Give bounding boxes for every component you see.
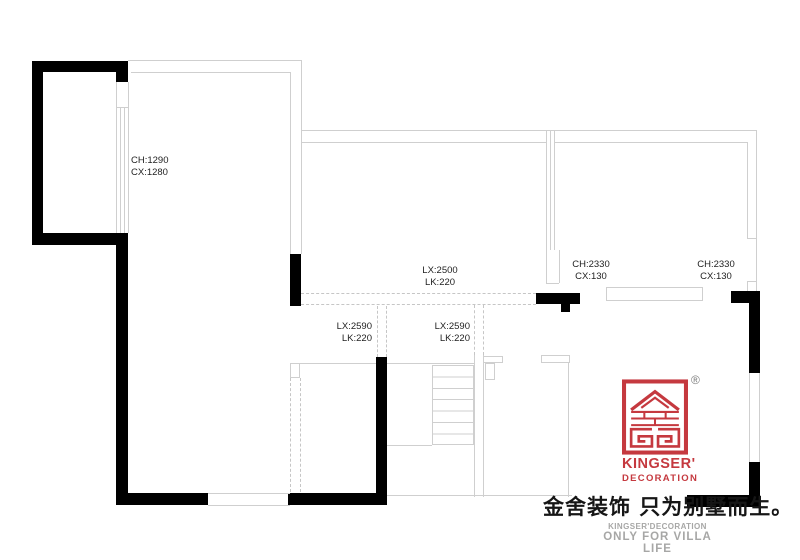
wall-hall-pier [290, 254, 301, 306]
wall-topleft-right-stub [116, 61, 128, 82]
landing-step-box [290, 363, 300, 378]
wall-living-right [376, 357, 387, 505]
wall-topleft-top [32, 61, 128, 72]
bath-top-step [541, 355, 570, 363]
door-opening-mid [606, 287, 703, 301]
line-room-right-jog3 [747, 281, 748, 291]
dim-label-door-mid: CH:2330 CX:130 [561, 259, 621, 283]
brand-slogan-chinese: 金舍装饰 只为别墅而生。 [543, 491, 793, 521]
line-outer-top [128, 60, 301, 61]
window-right-line-1 [749, 373, 750, 462]
registered-mark: ® [691, 373, 700, 387]
pillar-line-right [559, 250, 560, 283]
line-outer-upper [301, 130, 757, 131]
dim-line-2: CX:130 [686, 271, 746, 283]
line-room-right-jog2 [747, 281, 756, 282]
wall-mid-horizontal [536, 293, 580, 304]
line-room-right-jog1 [747, 238, 756, 239]
wall-mid-tab [561, 304, 570, 312]
landing-edge-right [387, 363, 474, 364]
dashed-wall-lower-1 [290, 378, 291, 492]
line-inner-left [290, 72, 291, 254]
stair-notch [485, 363, 495, 380]
dim-line-2: CX:130 [561, 271, 621, 283]
landing-bottom-edge [387, 445, 432, 446]
wall-living-left [116, 233, 128, 505]
dashed-beam-right-1 [474, 305, 475, 355]
dashed-beam-left-1 [377, 306, 378, 357]
dim-label-beam-right: LX:2590 LK:220 [420, 321, 470, 345]
window-right-edge [128, 82, 129, 233]
opening-bottom-line [208, 505, 290, 506]
pillar-line-left [546, 250, 547, 283]
stairs [432, 365, 474, 445]
dim-line-1: LX:2590 [420, 321, 470, 333]
stair-newel-box [483, 356, 503, 363]
pillar-line-bottom [546, 283, 559, 284]
line-hall-top [301, 142, 546, 143]
dim-label-beam-mid: LX:2500 LK:220 [410, 265, 470, 289]
window-sill [116, 107, 129, 108]
wall-right-upper [749, 291, 760, 373]
dim-line-1: LX:2590 [322, 321, 372, 333]
line-outer-right [756, 130, 757, 291]
dashed-beam-mid-1 [301, 293, 536, 294]
landing-edge-left [300, 363, 376, 364]
dim-line-2: LK:220 [420, 333, 470, 345]
window-pane-1 [120, 107, 121, 233]
dim-line-1: CH:2330 [561, 259, 621, 271]
window-right-line-2 [759, 373, 760, 462]
floor-plan-drawing: CH:1290 CX:1280 LX:2500 LK:220 LX:2590 L… [0, 0, 800, 560]
opening-top-line [208, 493, 290, 494]
window-divider-line-2 [550, 130, 551, 250]
line-room-top [554, 142, 747, 143]
dim-line-2: CX:1280 [131, 167, 169, 179]
brand-name: KINGSER' [622, 456, 702, 472]
line-inner-top [131, 72, 290, 73]
dim-line-1: CH:2330 [686, 259, 746, 271]
window-divider-line-1 [546, 130, 547, 250]
stairwell-wall-1 [474, 355, 475, 497]
dashed-beam-mid-2 [301, 304, 536, 305]
dim-label-window-left: CH:1290 CX:1280 [131, 155, 169, 179]
wall-topleft-bottom [32, 233, 128, 245]
line-hall-left [301, 130, 302, 254]
dashed-beam-right-2 [483, 305, 484, 355]
dim-line-1: LX:2500 [410, 265, 470, 277]
wall-living-bottom-left [116, 493, 208, 505]
line-outer-step [301, 60, 302, 130]
brand-subtitle: DECORATION [622, 473, 702, 484]
dim-line-1: CH:1290 [131, 155, 169, 167]
dashed-wall-lower-2 [300, 378, 301, 492]
kingser-logo-icon [622, 379, 688, 455]
footer-brand-line: KINGSER'DECORATION [600, 522, 715, 531]
wall-living-bottom-right [288, 493, 387, 505]
wall-topleft-left [32, 61, 43, 245]
line-room-right-inner [747, 142, 748, 238]
dashed-beam-left-2 [386, 306, 387, 357]
window-pane-2 [124, 107, 125, 233]
bath-right-wall [568, 363, 569, 497]
dim-line-2: LK:220 [410, 277, 470, 289]
stairwell-wall-2 [483, 355, 484, 497]
dim-line-2: LK:220 [322, 333, 372, 345]
window-divider-line-3 [554, 130, 555, 250]
dim-label-beam-left: LX:2590 LK:220 [322, 321, 372, 345]
window-left-edge [116, 82, 117, 233]
footer-tagline: ONLY FOR VILLA LIFE [588, 531, 727, 555]
dim-label-door-right: CH:2330 CX:130 [686, 259, 746, 283]
